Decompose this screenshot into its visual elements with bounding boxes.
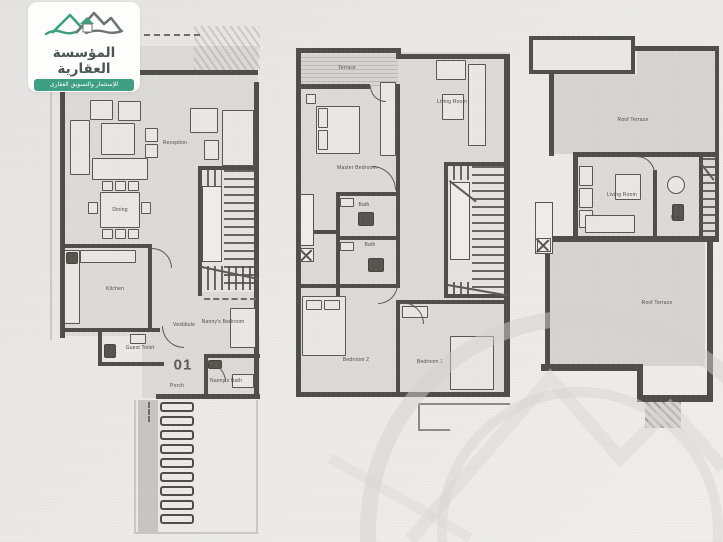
ground-floor-plan: Reception Dining Kitchen Guest Toilet Ve…: [56, 26, 268, 538]
stair-lightwell: [202, 186, 222, 262]
armchair: [90, 100, 113, 120]
stair-step: [160, 486, 194, 496]
stair-step: [160, 472, 194, 482]
wall: [444, 294, 508, 298]
wall: [545, 240, 550, 366]
terrace-fill: [637, 50, 719, 76]
wall: [296, 392, 510, 397]
wall: [549, 72, 554, 156]
coffee-table: [442, 94, 464, 120]
balcony-line: [418, 403, 420, 431]
wall: [336, 192, 400, 196]
walkway-line: [134, 400, 136, 532]
terrace-fill: [549, 74, 719, 154]
stairs-treads: [446, 166, 470, 180]
dashed-corner: [148, 402, 150, 422]
sofa: [70, 120, 90, 175]
wall: [396, 88, 400, 170]
room-label-master-bedroom: Master Bedroom: [337, 165, 377, 171]
wall: [573, 152, 578, 240]
dashed-partition: [204, 298, 256, 300]
room-label-vestibule: Vestibule: [173, 322, 195, 328]
mountains-house-icon: [40, 7, 128, 39]
stairs-treads: [200, 170, 222, 186]
chair: [102, 229, 113, 239]
bed: [450, 336, 494, 390]
pillow: [318, 108, 328, 128]
wall: [296, 284, 340, 288]
room-label-bath-2: Bath: [364, 242, 375, 248]
wall: [545, 236, 719, 242]
stair-step: [160, 416, 194, 426]
toilet: [358, 212, 374, 226]
chair: [128, 181, 139, 191]
sketch-hatch: [194, 26, 260, 70]
chair: [115, 229, 126, 239]
wall: [296, 48, 400, 53]
room-label-living-room: Living Room: [607, 192, 637, 198]
wall: [396, 170, 400, 288]
stairs-treads: [472, 166, 506, 294]
stair-step: [160, 458, 194, 468]
room-label-terrace: Terrace: [338, 65, 356, 71]
room-label-porch: Porch: [170, 383, 184, 389]
chair: [102, 181, 113, 191]
wall: [156, 394, 260, 399]
roof-notch: [529, 36, 635, 74]
sofa: [222, 110, 254, 166]
side-table: [145, 144, 158, 158]
sink: [130, 334, 146, 344]
wall: [707, 240, 713, 402]
terrace-fill: [549, 240, 705, 366]
room-label-bedroom-2: Bedroom 2: [343, 357, 369, 363]
shelf: [579, 188, 593, 208]
wall: [396, 300, 400, 396]
wall: [100, 362, 164, 366]
room-label-nannys-bath: Nanny's Bath: [210, 378, 242, 384]
wall: [635, 46, 719, 51]
wall: [60, 244, 152, 248]
balcony-line: [418, 429, 450, 431]
floor-plans-scan: Reception Dining Kitchen Guest Toilet Ve…: [0, 0, 723, 542]
coffee-table: [101, 123, 135, 155]
side-table: [204, 140, 219, 160]
roof-floor-plan: Roof Terrace Living Room Bath Roof Terra…: [515, 34, 723, 414]
chair: [141, 202, 151, 214]
walkway-line: [256, 400, 258, 534]
wall: [573, 152, 719, 157]
room-label-roof-terrace-upper: Roof Terrace: [618, 117, 649, 123]
bed: [230, 308, 256, 348]
stair-step: [160, 514, 194, 524]
sofa: [436, 60, 466, 80]
room-label-guest-toilet: Guest Toilet: [126, 345, 155, 351]
wall: [396, 54, 508, 59]
room-label-nannys-bedroom: Nanny's Bedroom: [202, 319, 245, 325]
wall: [637, 395, 713, 402]
wall: [204, 354, 260, 358]
armchair: [190, 108, 218, 133]
wall: [60, 328, 160, 332]
company-logo: المؤسسة العقارية للإستثمار والتسويق العق…: [28, 2, 140, 92]
room-label-kitchen: Kitchen: [106, 286, 124, 292]
shaft-box: [300, 248, 314, 262]
chair: [128, 229, 139, 239]
walkway-line: [134, 532, 258, 534]
first-floor-plan: Terrace Living Room Master Bedroom Bath …: [292, 44, 518, 440]
wall: [444, 162, 448, 298]
pillow: [306, 300, 322, 310]
unit-number: 01: [174, 357, 193, 374]
stair-step: [160, 402, 194, 412]
roof-step-block: [645, 402, 681, 428]
chair: [88, 202, 98, 214]
sofa: [585, 215, 635, 233]
sink: [667, 176, 685, 194]
kitchen-sink: [66, 252, 78, 264]
kitchen-counter: [80, 250, 136, 263]
closet: [300, 194, 314, 246]
stairs-treads: [200, 266, 258, 290]
room-label-bath: Bath: [670, 215, 681, 221]
wall: [296, 84, 370, 89]
wall: [541, 364, 643, 371]
chair: [115, 181, 126, 191]
room-label-reception: Reception: [163, 140, 187, 146]
stair-step: [160, 500, 194, 510]
logo-subtitle-ribbon: للإستثمار والتسويق العقارى: [34, 79, 134, 91]
wall: [396, 300, 508, 304]
site-boundary-line: [50, 84, 52, 340]
wall: [653, 170, 657, 238]
wall: [336, 236, 400, 240]
sink: [340, 198, 354, 207]
room-label-living-room: Living Room: [437, 99, 467, 105]
room-label-bath-1: Bath: [358, 202, 369, 208]
pillow: [324, 300, 340, 310]
sofa: [468, 64, 486, 146]
room-label-bedroom-1: Bedroom 1: [417, 359, 443, 365]
toilet: [368, 258, 384, 272]
wall: [98, 332, 102, 366]
stair-step: [160, 444, 194, 454]
shaft-box: [537, 238, 551, 252]
armchair: [118, 101, 141, 121]
stair-step: [160, 430, 194, 440]
logo-title: المؤسسة العقارية: [28, 45, 140, 77]
room-label-dining: Dining: [112, 207, 127, 213]
toilet: [104, 344, 116, 358]
sofa: [92, 158, 148, 180]
nightstand: [306, 94, 316, 104]
sink: [340, 242, 354, 251]
side-table: [145, 128, 158, 142]
pillow: [318, 130, 328, 150]
room-label-roof-terrace-lower: Roof Terrace: [642, 300, 673, 306]
shelf: [579, 166, 593, 186]
balcony-line: [418, 403, 510, 405]
